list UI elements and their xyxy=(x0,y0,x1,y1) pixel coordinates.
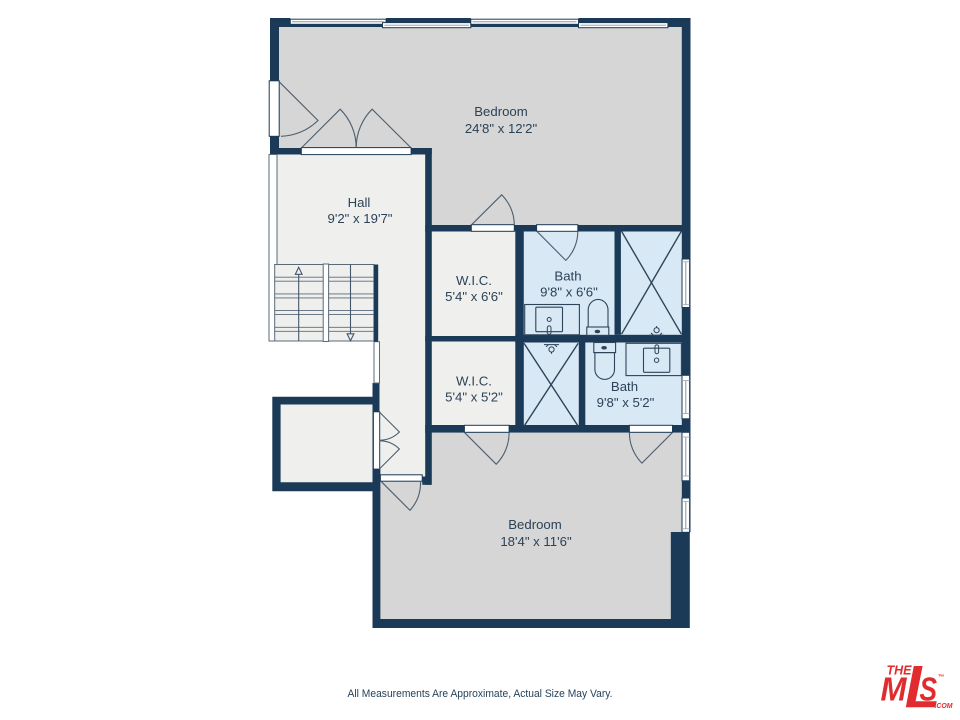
svg-text:W.I.C.: W.I.C. xyxy=(456,273,492,288)
svg-text:18'4" x 11'6": 18'4" x 11'6" xyxy=(500,534,572,549)
svg-text:W.I.C.: W.I.C. xyxy=(456,374,492,389)
svg-text:Bath: Bath xyxy=(611,379,638,394)
svg-text:Bath: Bath xyxy=(554,269,581,284)
svg-text:5'4" x 6'6": 5'4" x 6'6" xyxy=(445,289,503,304)
svg-text:9'8" x 6'6": 9'8" x 6'6" xyxy=(540,285,598,300)
svg-text:Bedroom: Bedroom xyxy=(474,104,528,119)
svg-text:Bedroom: Bedroom xyxy=(508,517,562,532)
svg-text:™: ™ xyxy=(938,674,945,681)
svg-text:All Measurements Are Approxima: All Measurements Are Approximate, Actual… xyxy=(348,688,613,700)
svg-text:M: M xyxy=(881,671,908,708)
svg-text:9'8" x 5'2": 9'8" x 5'2" xyxy=(597,395,655,410)
svg-text:5'4" x 5'2": 5'4" x 5'2" xyxy=(445,390,503,405)
svg-text:9'2" x 19'7": 9'2" x 19'7" xyxy=(328,211,393,226)
svg-text:Hall: Hall xyxy=(348,195,371,210)
svg-text:24'8" x 12'2": 24'8" x 12'2" xyxy=(465,121,538,136)
svg-text:.COM: .COM xyxy=(935,701,954,710)
